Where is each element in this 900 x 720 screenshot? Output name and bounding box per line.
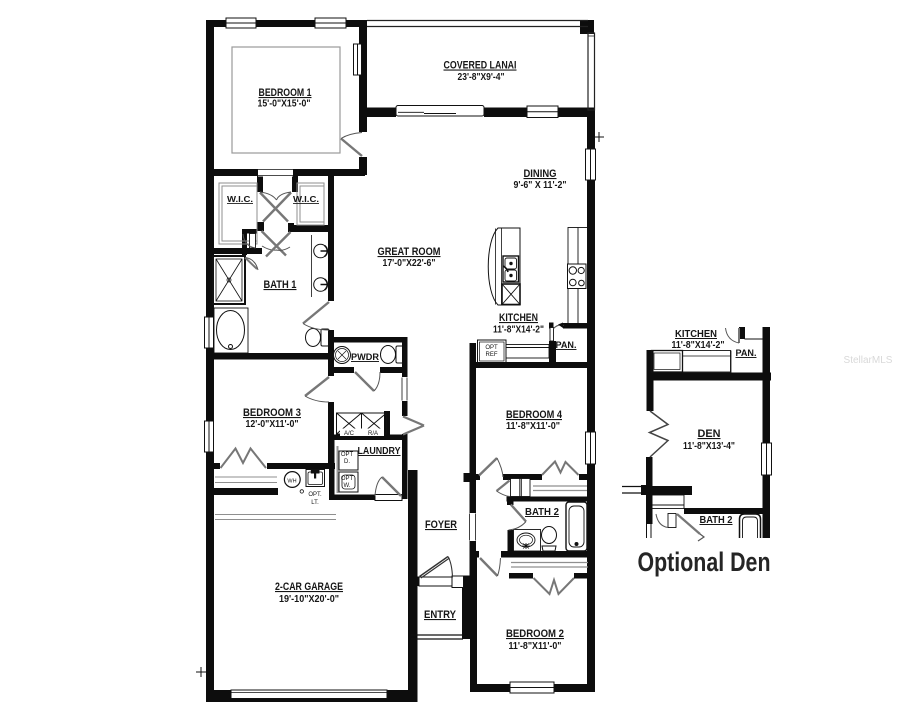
svg-text:W.I.C.: W.I.C. <box>227 194 253 204</box>
svg-text:REF: REF <box>486 352 498 358</box>
svg-text:StellarMLS: StellarMLS <box>844 355 893 366</box>
svg-text:KITCHEN: KITCHEN <box>675 329 717 340</box>
svg-text:BATH 2: BATH 2 <box>700 515 733 526</box>
svg-text:23'-8"X9'-4": 23'-8"X9'-4" <box>458 71 505 83</box>
svg-text:OPT: OPT <box>485 345 498 351</box>
svg-text:W.: W. <box>344 483 351 489</box>
svg-text:WH: WH <box>287 479 296 485</box>
svg-text:COVERED LANAI: COVERED LANAI <box>444 60 517 72</box>
svg-text:KITCHEN: KITCHEN <box>499 312 538 324</box>
svg-text:PWDR: PWDR <box>351 352 379 363</box>
svg-text:D.: D. <box>344 459 350 465</box>
svg-text:A/C: A/C <box>344 431 355 437</box>
svg-text:ENTRY: ENTRY <box>424 609 457 621</box>
svg-text:19'-10"X20'-0": 19'-10"X20'-0" <box>279 593 339 605</box>
svg-text:DEN: DEN <box>698 428 721 440</box>
svg-text:2-CAR GARAGE: 2-CAR GARAGE <box>275 581 343 593</box>
svg-text:W.I.C.: W.I.C. <box>293 194 319 204</box>
svg-text:15'-0"X15'-0": 15'-0"X15'-0" <box>258 98 311 110</box>
svg-text:BEDROOM 2: BEDROOM 2 <box>506 628 564 640</box>
svg-text:12'-0"X11'-0": 12'-0"X11'-0" <box>246 418 299 430</box>
svg-text:11'-8"X13'-4": 11'-8"X13'-4" <box>683 440 735 452</box>
svg-text:BATH 1: BATH 1 <box>264 279 297 291</box>
svg-text:R/A: R/A <box>368 431 378 437</box>
svg-text:Optional Den: Optional Den <box>638 547 771 577</box>
svg-text:PAN.: PAN. <box>736 348 757 359</box>
svg-text:OPT.: OPT. <box>308 492 322 498</box>
svg-text:9'-6" X 11'-2": 9'-6" X 11'-2" <box>514 179 567 191</box>
svg-text:11'-8"X14'-2": 11'-8"X14'-2" <box>672 340 725 351</box>
svg-text:OPT: OPT <box>341 452 354 458</box>
svg-text:PAN.: PAN. <box>556 340 577 351</box>
svg-text:BATH 2: BATH 2 <box>525 507 559 518</box>
svg-text:11'-8"X14'-2": 11'-8"X14'-2" <box>493 324 544 336</box>
svg-text:11'-8"X11'-0": 11'-8"X11'-0" <box>506 420 560 432</box>
svg-text:FOYER: FOYER <box>425 519 457 531</box>
svg-text:11'-8"X11'-0": 11'-8"X11'-0" <box>509 640 562 652</box>
svg-text:LAUNDRY: LAUNDRY <box>358 446 401 457</box>
svg-text:LT.: LT. <box>311 500 319 506</box>
svg-text:OPT: OPT <box>341 476 354 482</box>
svg-text:17'-0"X22'-6": 17'-0"X22'-6" <box>383 257 436 269</box>
